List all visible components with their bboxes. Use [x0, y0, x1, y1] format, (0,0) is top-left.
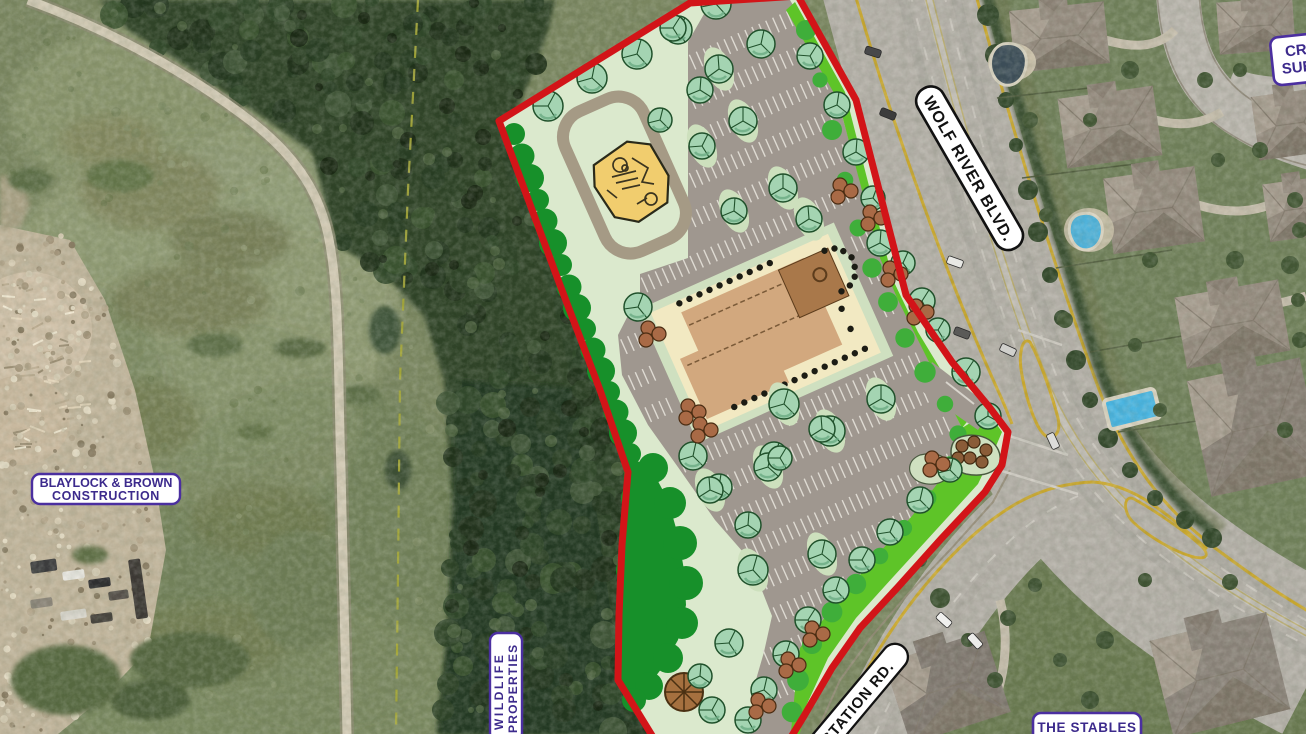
svg-text:SUB: SUB: [1281, 58, 1306, 78]
svg-text:PROPERTIES: PROPERTIES: [506, 644, 520, 733]
svg-text:CRE: CRE: [1284, 40, 1306, 60]
svg-text:CONSTRUCTION: CONSTRUCTION: [52, 489, 160, 503]
svg-text:WILDLIFE: WILDLIFE: [492, 653, 506, 730]
svg-text:BLAYLOCK & BROWN: BLAYLOCK & BROWN: [40, 476, 173, 490]
svg-text:THE STABLES: THE STABLES: [1037, 720, 1136, 734]
